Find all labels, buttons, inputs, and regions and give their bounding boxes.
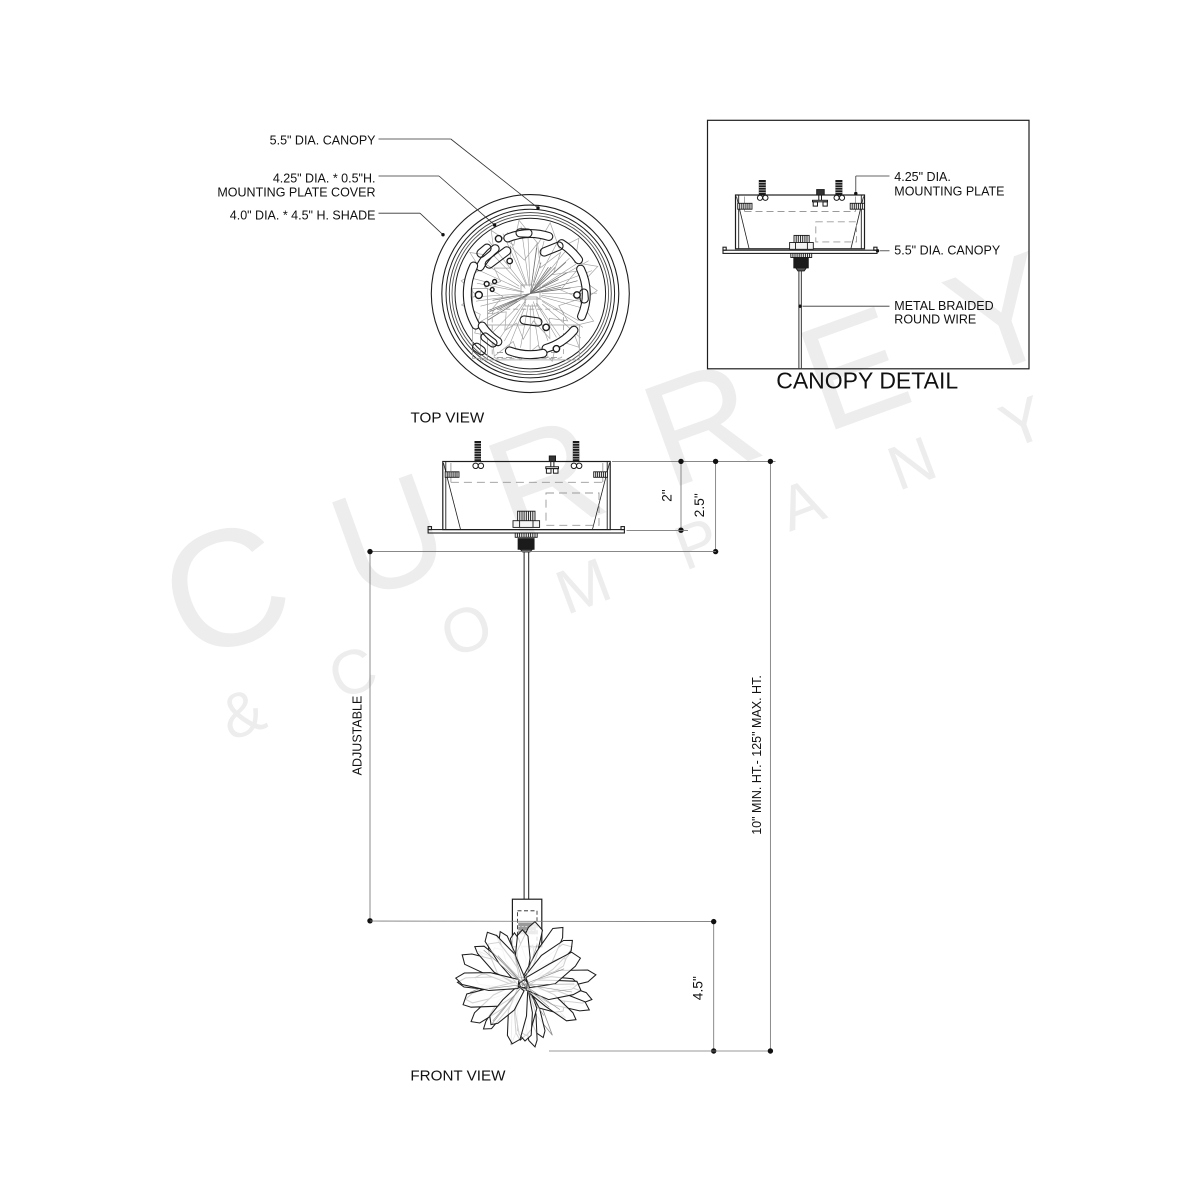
svg-text:ADJUSTABLE: ADJUSTABLE: [351, 696, 365, 776]
svg-text:CANOPY DETAIL: CANOPY DETAIL: [776, 367, 958, 393]
svg-text:5.5" DIA. CANOPY: 5.5" DIA. CANOPY: [270, 134, 377, 148]
svg-text:2.5": 2.5": [692, 493, 707, 517]
svg-text:5.5" DIA. CANOPY: 5.5" DIA. CANOPY: [894, 244, 1001, 258]
svg-text:4.25" DIA.: 4.25" DIA.: [894, 170, 951, 184]
svg-text:2": 2": [660, 489, 675, 502]
svg-text:4.25" DIA. * 0.5"H.: 4.25" DIA. * 0.5"H.: [273, 171, 376, 185]
svg-text:MOUNTING PLATE: MOUNTING PLATE: [894, 184, 1004, 198]
svg-text:MOUNTING PLATE COVER: MOUNTING PLATE COVER: [217, 186, 375, 200]
svg-text:4.5": 4.5": [691, 976, 706, 1000]
svg-text:4.0" DIA. * 4.5" H. SHADE: 4.0" DIA. * 4.5" H. SHADE: [230, 209, 376, 223]
svg-text:TOP VIEW: TOP VIEW: [411, 410, 485, 427]
svg-text:10" MIN. HT.- 125" MAX. HT.: 10" MIN. HT.- 125" MAX. HT.: [750, 675, 764, 835]
svg-text:METAL BRAIDED: METAL BRAIDED: [894, 299, 993, 313]
svg-text:FRONT VIEW: FRONT VIEW: [410, 1068, 506, 1085]
svg-text:ROUND WIRE: ROUND WIRE: [894, 313, 976, 327]
